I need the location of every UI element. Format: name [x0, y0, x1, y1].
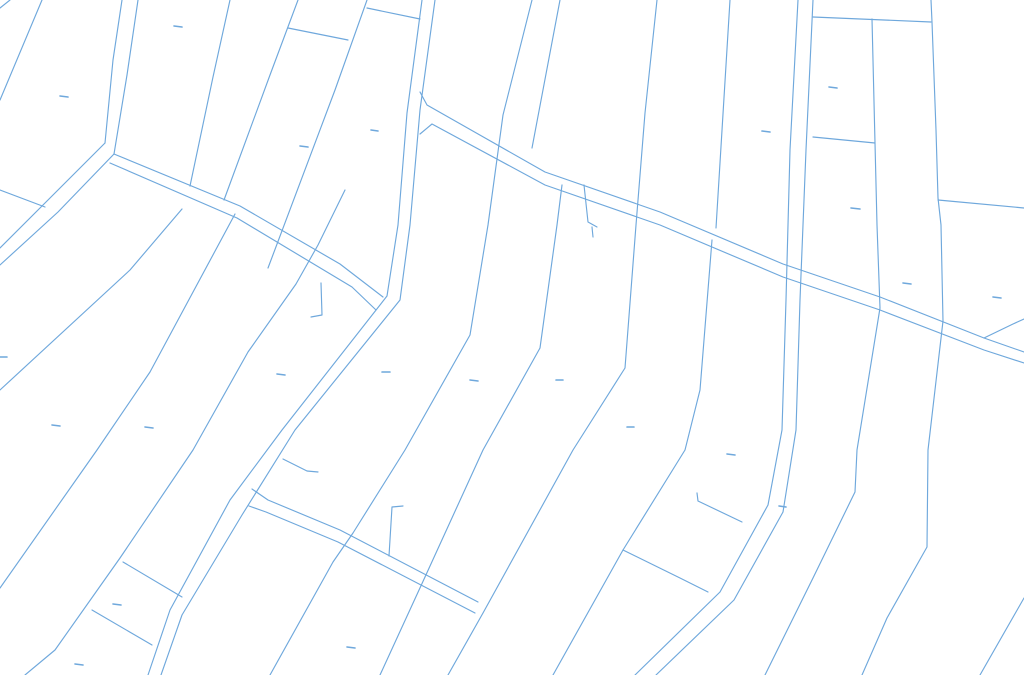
parcel-dash-mark [145, 427, 153, 428]
feature-mark-line [697, 493, 742, 522]
feature-mark-line [592, 227, 593, 237]
map-viewport[interactable] [0, 0, 1024, 675]
parcel-boundary-line [270, 0, 532, 675]
road-edge-line [420, 124, 1024, 363]
feature-marks-layer [92, 8, 742, 645]
parcel-boundary-line [765, 19, 880, 675]
feature-mark-line [623, 550, 708, 592]
parcel-boundary-line [0, 0, 10, 8]
feature-mark-line [311, 283, 322, 317]
road-edge-line [635, 0, 798, 675]
road-edge-line [0, 154, 114, 265]
parcel-boundary-line [190, 0, 230, 186]
parcel-dash-mark [60, 96, 68, 97]
feature-mark-line [283, 459, 318, 472]
parcel-boundaries-layer [0, 0, 1024, 675]
feature-mark-line [389, 506, 403, 556]
parcel-boundary-line [224, 0, 298, 200]
feature-mark-line [584, 185, 597, 227]
parcel-boundary-line [813, 137, 875, 143]
parcel-dash-mark [762, 131, 770, 132]
parcel-boundary-line [984, 319, 1024, 338]
parcel-boundary-line [980, 598, 1024, 675]
parcel-dash-mark [829, 87, 837, 88]
parcel-boundary-line [25, 190, 345, 675]
road-edge-line [656, 0, 813, 675]
parcel-dash-mark [371, 130, 378, 131]
road-edge-line [148, 0, 422, 675]
parcel-dash-mark [903, 283, 911, 284]
parcel-dash-mark [300, 146, 308, 147]
parcel-dash-mark [779, 506, 786, 507]
parcel-boundary-line [448, 0, 657, 675]
road-edge-line [114, 0, 138, 154]
feature-mark-line [288, 28, 348, 40]
parcel-dash-mark [75, 664, 83, 665]
parcel-boundary-line [532, 0, 560, 148]
road-lines-layer [0, 0, 1024, 675]
dash-marks-layer [0, 26, 1001, 665]
parcel-dash-mark [52, 425, 60, 426]
parcel-dash-mark [727, 454, 735, 455]
road-edge-line [249, 506, 475, 613]
parcel-dash-mark [277, 374, 285, 375]
parcel-boundary-line [716, 0, 730, 228]
parcel-dash-mark [174, 26, 182, 27]
road-edge-line [161, 0, 435, 675]
feature-mark-line [123, 562, 182, 597]
road-edge-line [252, 489, 478, 602]
parcel-boundary-line [0, 190, 45, 207]
parcel-boundary-line [380, 185, 562, 675]
parcel-dash-mark [347, 647, 355, 648]
feature-mark-line [92, 610, 152, 645]
parcel-boundary-line [553, 240, 712, 675]
parcel-boundary-line [0, 214, 235, 588]
parcel-map-canvas[interactable] [0, 0, 1024, 675]
feature-mark-line [367, 8, 420, 19]
parcel-dash-mark [470, 380, 478, 381]
parcel-dash-mark [113, 604, 121, 605]
road-edge-line [110, 163, 376, 310]
parcel-dash-mark [851, 208, 860, 209]
parcel-boundary-line [938, 200, 1024, 208]
parcel-dash-mark [993, 297, 1001, 298]
parcel-boundary-line [0, 0, 42, 100]
